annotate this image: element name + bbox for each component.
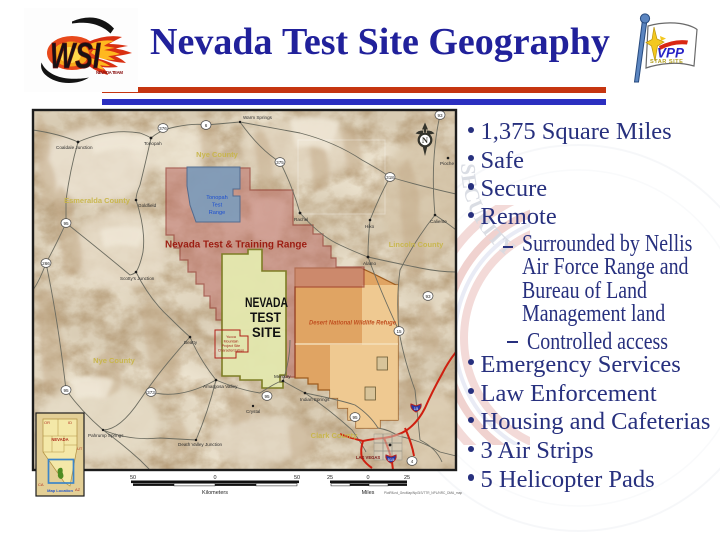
svg-text:UT: UT <box>77 446 83 451</box>
svg-text:Warm Springs: Warm Springs <box>243 115 273 120</box>
svg-text:TEST: TEST <box>250 310 282 325</box>
svg-text:515: 515 <box>388 457 395 462</box>
svg-text:373: 373 <box>147 390 155 395</box>
svg-text:266: 266 <box>42 261 50 266</box>
svg-text:Map Location: Map Location <box>47 488 73 493</box>
svg-text:Alamo: Alamo <box>363 261 376 266</box>
svg-text:LAS VEGAS: LAS VEGAS <box>356 455 380 460</box>
svg-text:Nevada Test & Training Range: Nevada Test & Training Range <box>165 239 307 251</box>
svg-text:375: 375 <box>276 160 284 165</box>
svg-text:Test: Test <box>212 203 223 209</box>
svg-text:93: 93 <box>425 294 431 299</box>
svg-text:50: 50 <box>130 475 136 481</box>
svg-text:Mountain: Mountain <box>224 340 239 344</box>
svg-text:Project Site: Project Site <box>222 344 240 348</box>
svg-text:Lincoln County: Lincoln County <box>389 240 444 249</box>
svg-text:Mercury: Mercury <box>274 374 291 379</box>
svg-text:Nye County: Nye County <box>196 150 239 159</box>
svg-text:15: 15 <box>396 329 402 334</box>
svg-text:Clark County: Clark County <box>311 431 359 440</box>
svg-text:95: 95 <box>264 394 270 399</box>
svg-text:Beatty: Beatty <box>184 340 198 345</box>
svg-text:25: 25 <box>327 475 333 481</box>
svg-text:Crystal: Crystal <box>246 409 260 414</box>
svg-text:Desert National Wildlife Refug: Desert National Wildlife Refuge <box>309 320 396 327</box>
svg-text:Tonopah: Tonopah <box>144 141 162 146</box>
svg-text:Scotty's Junction: Scotty's Junction <box>120 276 155 281</box>
svg-text:25: 25 <box>404 475 410 481</box>
svg-text:SITE: SITE <box>252 325 281 340</box>
svg-text:Coaldale Junction: Coaldale Junction <box>56 145 93 150</box>
svg-text:93: 93 <box>437 113 443 118</box>
svg-text:AZ: AZ <box>75 487 81 492</box>
svg-text:Death Valley Junction: Death Valley Junction <box>178 442 223 447</box>
svg-text:318: 318 <box>386 175 394 180</box>
svg-text:NEVADA: NEVADA <box>51 437 68 442</box>
svg-text:Yucca: Yucca <box>226 335 236 339</box>
svg-text:Rachel: Rachel <box>294 217 308 222</box>
svg-text:Goldfield: Goldfield <box>138 203 157 208</box>
svg-text:Miles: Miles <box>362 490 375 496</box>
svg-text:15: 15 <box>414 406 419 411</box>
svg-text:6: 6 <box>205 123 208 128</box>
svg-text:Hiko: Hiko <box>365 224 375 229</box>
svg-text:376: 376 <box>159 126 167 131</box>
svg-text:95: 95 <box>63 388 69 393</box>
svg-text:Pahrump Springs: Pahrump Springs <box>88 433 124 438</box>
svg-text:4: 4 <box>411 459 414 464</box>
svg-text:95: 95 <box>352 415 358 420</box>
svg-text:Kilometers: Kilometers <box>202 490 228 496</box>
svg-text:Esmeralda County: Esmeralda County <box>64 196 131 205</box>
svg-text:CA: CA <box>38 482 44 487</box>
svg-text:ID: ID <box>68 420 72 425</box>
svg-text:50: 50 <box>294 475 300 481</box>
svg-text:PlotRfLnd_GeoMap/NpGIS/TTR_NPL: PlotRfLnd_GeoMap/NpGIS/TTR_NPL/NRC_DMA_m… <box>384 491 462 495</box>
svg-text:Caliente: Caliente <box>430 219 447 224</box>
svg-text:Indian Springs: Indian Springs <box>300 397 330 402</box>
svg-text:NEVADA: NEVADA <box>245 295 288 310</box>
svg-text:OR: OR <box>44 420 50 425</box>
svg-text:95: 95 <box>63 221 69 226</box>
svg-text:Nye County: Nye County <box>93 356 136 365</box>
svg-text:Pioche: Pioche <box>440 161 454 166</box>
svg-text:Characterization: Characterization <box>218 349 244 353</box>
svg-text:Range: Range <box>209 210 225 216</box>
svg-text:N: N <box>422 135 429 145</box>
svg-text:0: 0 <box>366 475 369 481</box>
svg-text:Amargosa Valley: Amargosa Valley <box>203 384 238 389</box>
svg-text:0: 0 <box>213 475 216 481</box>
svg-text:Tonopah: Tonopah <box>206 195 227 201</box>
